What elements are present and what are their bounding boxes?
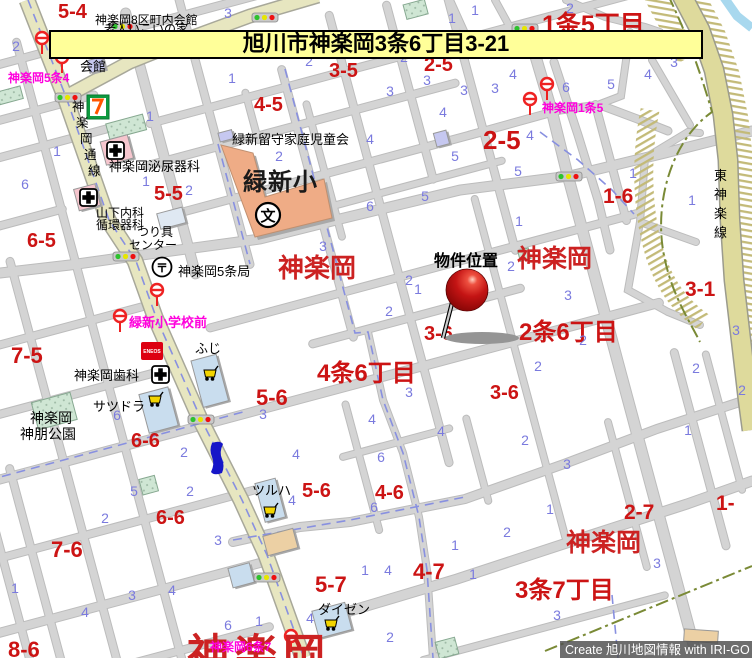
svg-text:3: 3 (259, 406, 267, 422)
svg-text:ENEOS: ENEOS (143, 349, 161, 355)
svg-text:2: 2 (521, 432, 529, 448)
svg-text:ダイゼン: ダイゼン (318, 602, 370, 617)
svg-text:3-6: 3-6 (424, 323, 453, 345)
svg-text:2: 2 (738, 382, 746, 398)
svg-text:神楽岡: 神楽岡 (278, 254, 356, 283)
svg-text:2: 2 (405, 272, 413, 288)
svg-text:5-5: 5-5 (154, 183, 183, 205)
svg-text:5-6: 5-6 (302, 480, 331, 502)
svg-text:3: 3 (423, 72, 431, 88)
svg-text:緑新小: 緑新小 (243, 168, 318, 196)
svg-text:3: 3 (460, 82, 468, 98)
svg-text:神楽岡: 神楽岡 (517, 244, 592, 273)
svg-text:神楽岡5条局: 神楽岡5条局 (178, 264, 250, 279)
svg-text:2-7: 2-7 (624, 501, 654, 524)
svg-text:5: 5 (130, 483, 138, 499)
svg-text:6: 6 (21, 176, 29, 192)
svg-text:2: 2 (503, 524, 511, 540)
svg-text:3: 3 (405, 384, 413, 400)
svg-text:6: 6 (113, 407, 121, 423)
svg-text:1: 1 (448, 10, 456, 26)
svg-text:6: 6 (366, 198, 374, 214)
svg-text:3: 3 (224, 5, 232, 21)
svg-text:1: 1 (688, 192, 696, 208)
svg-text:3: 3 (563, 456, 571, 472)
svg-text:3: 3 (128, 587, 136, 603)
svg-text:4: 4 (366, 131, 374, 147)
svg-text:2: 2 (101, 510, 109, 526)
svg-text:4-6: 4-6 (375, 482, 404, 504)
svg-text:1: 1 (515, 213, 523, 229)
svg-text:4: 4 (437, 423, 445, 439)
svg-text:2条6丁目: 2条6丁目 (519, 319, 618, 346)
svg-text:神: 神 (72, 100, 85, 114)
svg-text:6-5: 6-5 (27, 230, 56, 252)
svg-text:神楽岡: 神楽岡 (30, 410, 72, 426)
svg-text:3: 3 (732, 322, 740, 338)
svg-text:神朋公園: 神朋公園 (20, 426, 76, 442)
svg-text:3: 3 (491, 80, 499, 96)
svg-text:つり具: つり具 (137, 225, 173, 239)
svg-text:5-7: 5-7 (315, 572, 347, 597)
svg-text:6-6: 6-6 (156, 507, 185, 529)
svg-text:通: 通 (84, 148, 97, 162)
svg-text:1: 1 (146, 108, 154, 124)
svg-text:4: 4 (439, 104, 447, 120)
svg-text:4: 4 (509, 66, 517, 82)
svg-text:1: 1 (469, 566, 477, 582)
svg-text:2: 2 (185, 182, 193, 198)
svg-text:6: 6 (224, 617, 232, 633)
svg-text:3: 3 (386, 83, 394, 99)
svg-text:6: 6 (370, 499, 378, 515)
svg-text:6: 6 (377, 449, 385, 465)
svg-text:神楽岡6条7: 神楽岡6条7 (210, 639, 272, 654)
svg-text:ふじ: ふじ (195, 341, 221, 356)
svg-text:神: 神 (714, 187, 727, 202)
svg-text:4: 4 (644, 66, 652, 82)
svg-text:5-4: 5-4 (58, 1, 88, 23)
svg-text:1: 1 (228, 70, 236, 86)
svg-text:緑新留守家庭児童会: 緑新留守家庭児童会 (232, 132, 349, 147)
svg-text:旭川市神楽岡3条6丁目3-21: 旭川市神楽岡3条6丁目3-21 (242, 31, 510, 56)
svg-text:7-6: 7-6 (51, 537, 83, 562)
svg-text:2: 2 (385, 303, 393, 319)
svg-text:1: 1 (471, 2, 479, 18)
svg-text:3: 3 (214, 532, 222, 548)
svg-text:5: 5 (607, 76, 615, 92)
svg-text:4条6丁目: 4条6丁目 (317, 360, 416, 387)
svg-text:1: 1 (11, 580, 19, 596)
svg-text:神楽岡泌尿器科: 神楽岡泌尿器科 (109, 159, 200, 174)
svg-text:2: 2 (180, 444, 188, 460)
svg-text:2: 2 (534, 358, 542, 374)
svg-text:1: 1 (414, 281, 422, 297)
svg-text:2: 2 (579, 332, 587, 348)
svg-text:5: 5 (421, 188, 429, 204)
svg-text:3-5: 3-5 (329, 60, 358, 82)
svg-text:神楽岡1条5: 神楽岡1条5 (542, 100, 604, 115)
svg-text:1: 1 (629, 165, 637, 181)
svg-text:2: 2 (186, 483, 194, 499)
svg-text:楽: 楽 (714, 206, 727, 221)
svg-text:岡: 岡 (80, 132, 93, 146)
svg-text:4: 4 (526, 127, 534, 143)
svg-text:2-5: 2-5 (483, 125, 521, 155)
svg-text:1: 1 (142, 173, 150, 189)
svg-text:センター: センター (129, 238, 177, 252)
svg-text:3: 3 (319, 238, 327, 254)
svg-text:楽: 楽 (76, 115, 89, 130)
svg-text:3: 3 (553, 607, 561, 623)
svg-text:1: 1 (361, 562, 369, 578)
svg-text:4: 4 (368, 411, 376, 427)
svg-text:〒: 〒 (156, 261, 168, 275)
svg-text:2: 2 (386, 629, 394, 645)
svg-text:2: 2 (566, 0, 574, 16)
svg-text:4: 4 (306, 610, 314, 626)
svg-text:6: 6 (562, 79, 570, 95)
svg-text:会館: 会館 (80, 59, 106, 74)
svg-text:3-1: 3-1 (685, 278, 716, 301)
svg-text:3: 3 (564, 287, 572, 303)
svg-text:3条7丁目: 3条7丁目 (515, 577, 614, 604)
svg-text:1: 1 (451, 537, 459, 553)
svg-text:2: 2 (692, 360, 700, 376)
svg-text:緑新小学校前: 緑新小学校前 (129, 315, 207, 330)
svg-text:4: 4 (81, 604, 89, 620)
svg-text:1-6: 1-6 (603, 185, 633, 208)
svg-text:4: 4 (384, 562, 392, 578)
svg-text:東: 東 (714, 168, 727, 183)
svg-text:8-6: 8-6 (8, 637, 40, 658)
svg-text:5: 5 (451, 148, 459, 164)
svg-text:4: 4 (168, 582, 176, 598)
svg-text:4-7: 4-7 (413, 559, 445, 584)
svg-text:1: 1 (546, 501, 554, 517)
svg-text:3: 3 (653, 555, 661, 571)
svg-text:1: 1 (684, 422, 692, 438)
svg-text:1-: 1- (716, 492, 735, 515)
svg-text:4-5: 4-5 (254, 94, 283, 116)
svg-text:4: 4 (292, 446, 300, 462)
svg-text:ツルハ: ツルハ (252, 483, 291, 498)
svg-text:2: 2 (275, 148, 283, 164)
svg-text:神楽岡歯科: 神楽岡歯科 (74, 368, 139, 383)
svg-text:2: 2 (12, 38, 20, 54)
svg-text:物件位置: 物件位置 (434, 251, 498, 270)
svg-text:7-5: 7-5 (11, 343, 43, 368)
svg-text:文: 文 (260, 207, 276, 225)
svg-text:3-6: 3-6 (490, 382, 519, 404)
svg-text:線: 線 (714, 225, 727, 240)
svg-text:2: 2 (507, 258, 515, 274)
svg-text:線: 線 (88, 163, 101, 178)
svg-text:4: 4 (288, 492, 296, 508)
svg-text:Create 旭川地図情報 with IRI-GO: Create 旭川地図情報 with IRI-GO (565, 643, 750, 657)
svg-text:6-6: 6-6 (131, 430, 160, 452)
svg-text:5: 5 (514, 163, 522, 179)
svg-text:1: 1 (255, 613, 263, 629)
svg-text:神楽岡5条4: 神楽岡5条4 (8, 70, 70, 85)
svg-text:神楽岡: 神楽岡 (566, 528, 641, 557)
svg-text:1: 1 (53, 143, 61, 159)
